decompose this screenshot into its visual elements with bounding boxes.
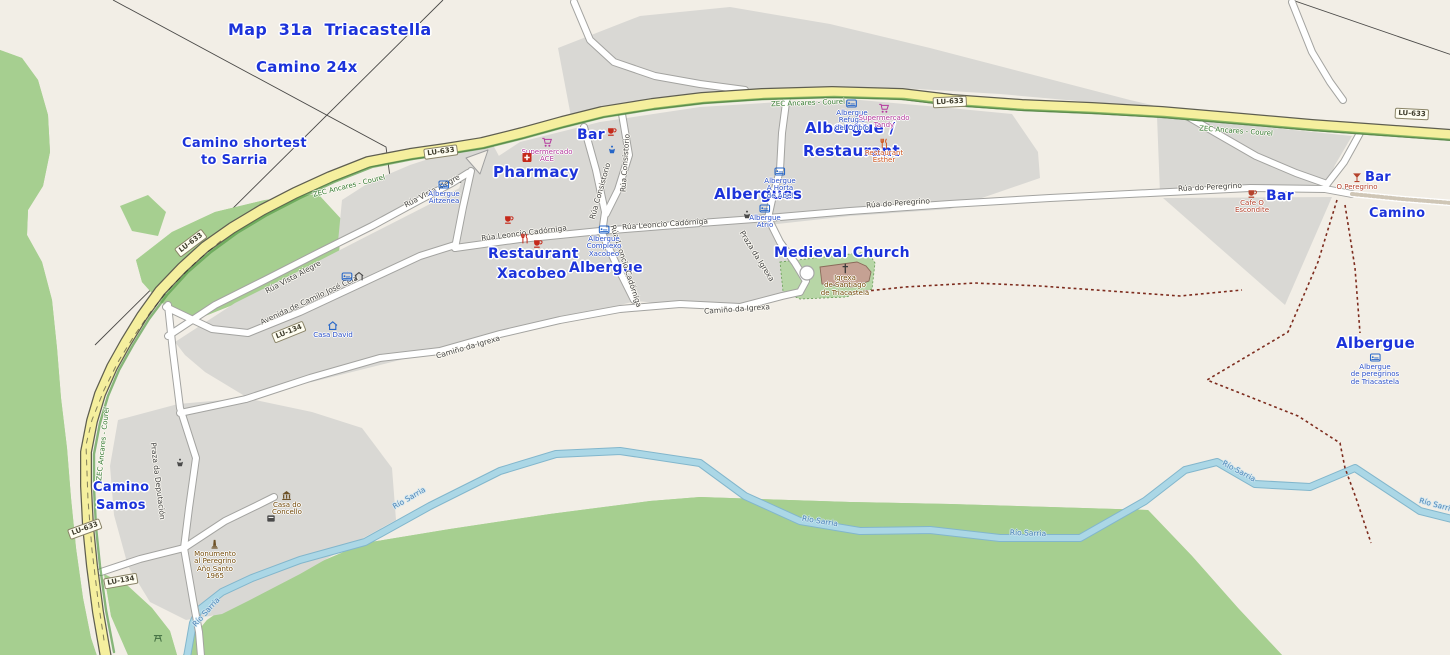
- river-name-label: Río Sarria: [1221, 458, 1257, 483]
- poi-label: Casa doConcello: [272, 502, 302, 517]
- bed-icon: [760, 203, 771, 214]
- poi-supermercado-tandy: SupermercadoTandy: [858, 103, 909, 130]
- poi-restaurant-xacobeo: [520, 233, 531, 244]
- poi-label: AlbergueAitzenea: [428, 191, 459, 206]
- poi-postbox: [266, 513, 277, 524]
- poi-label: O Peregrino: [1336, 184, 1377, 192]
- poi-pharmacy: [522, 152, 533, 163]
- monument-icon: [209, 539, 220, 550]
- poi-albergue-atrio: AlbergueAtrio: [749, 203, 780, 230]
- house-icon: [328, 320, 339, 331]
- martini-icon: [1352, 172, 1363, 183]
- pharmacy-icon: [522, 152, 533, 163]
- fork-icon: [878, 138, 889, 149]
- poi-bar-xacobeo: [533, 238, 544, 249]
- annotation-bar-east-1: Bar: [1266, 188, 1294, 204]
- poi-hotel-shelter: [354, 271, 365, 282]
- poi-hotel-bed: [342, 271, 353, 282]
- poi-label: AlbergueA Hortade Abel: [764, 178, 795, 201]
- cart-icon: [878, 103, 889, 114]
- road-shield: LU-134: [103, 573, 139, 590]
- poi-label: Casa David: [313, 332, 353, 340]
- poi-fountain-deputacion: [175, 457, 186, 468]
- road-shield: LU-633: [1395, 108, 1430, 121]
- river-name-label: Río Sarria: [1010, 528, 1047, 538]
- annotation-medieval-church: Medieval Church: [774, 245, 910, 261]
- annotation-camino-shortest-2: to Sarria: [201, 153, 268, 168]
- poi-restaurant-esther: RestaurantEsther: [865, 138, 903, 165]
- bed-icon: [775, 166, 786, 177]
- zec-boundary-label: ZEC Ancares - Courel: [95, 407, 111, 481]
- poi-label: Alberguede peregrinosde Triacastela: [1351, 364, 1399, 387]
- shelter-icon: [354, 271, 365, 282]
- bed-icon: [342, 271, 353, 282]
- poi-casa-do-concello: Casa doConcello: [272, 490, 302, 517]
- street-name-label: Rúa do Peregrino: [1178, 181, 1242, 193]
- annotation-albergue-southeast: Albergue: [1336, 334, 1415, 352]
- street-name-label: Rúa do Peregrino: [866, 196, 930, 209]
- annotation-bar-center: Bar: [577, 127, 605, 143]
- townhall-icon: [282, 490, 293, 501]
- bed-icon: [847, 98, 858, 109]
- poi-drinking-water: [607, 144, 618, 155]
- fountain-icon: [175, 457, 186, 468]
- annotation-restaurant-xacobeo-2: Xacobeo: [497, 266, 566, 282]
- bed-icon: [1370, 352, 1381, 363]
- poi-label: Cafe OEscondite: [1235, 200, 1269, 215]
- poi-casa-david: Casa David: [313, 320, 353, 340]
- poi-monumento-peregrino: Monumentoal PeregrinoAño Santo1965: [194, 539, 236, 581]
- poi-picnic-site: [153, 632, 164, 643]
- poi-albergue-a-horta-de-abel: AlbergueA Hortade Abel: [764, 166, 795, 201]
- annotation-map-title: Map 31a Triacastella: [228, 20, 432, 39]
- river-name-label: Río Sarria: [1418, 496, 1450, 514]
- cup-icon: [504, 214, 515, 225]
- fork-icon: [520, 233, 531, 244]
- road-shield: LU-633: [67, 518, 103, 540]
- picnic-icon: [153, 632, 164, 643]
- street-name-label: Camiño da Igrexa: [704, 302, 771, 316]
- street-name-label: Rúa Leoncio Cadórniga: [622, 217, 709, 232]
- road-shield: LU-134: [271, 320, 307, 343]
- triacastela-map: Map 31a TriacastellaCamino 24xCamino sho…: [0, 0, 1450, 655]
- street-name-label: Rúa Consistorio: [618, 134, 631, 193]
- zec-boundary-label: ZEC Ancares - Courel: [312, 173, 386, 199]
- poi-o-peregrino: O Peregrino: [1336, 172, 1377, 192]
- fountain-icon: [607, 144, 618, 155]
- poi-label: Igrexade Santiagode Triacastela: [821, 275, 869, 298]
- zec-boundary-label: ZEC Ancares - Courel: [771, 98, 845, 109]
- poi-albergue-peregrinos: Alberguede peregrinosde Triacastela: [1351, 352, 1399, 387]
- poi-bar-leoncio: [504, 214, 515, 225]
- poi-label: Monumentoal PeregrinoAño Santo1965: [194, 551, 236, 581]
- street-name-label: Rúa Vista Alegre: [264, 259, 323, 296]
- poi-label: AlbergueComplexoXacobeo: [587, 236, 622, 259]
- poi-albergue-aitzenea: AlbergueAitzenea: [428, 179, 459, 206]
- annotation-pharmacy: Pharmacy: [493, 163, 579, 181]
- poi-label: RestaurantEsther: [865, 150, 903, 165]
- river-name-label: Río Sarria: [190, 595, 221, 628]
- annotation-camino-samos-2: Samos: [96, 498, 146, 513]
- river-name-label: Río Sarria: [391, 485, 427, 511]
- poi-bar-top: [607, 126, 618, 137]
- fountain-icon: [742, 209, 753, 220]
- road-shield: LU-633: [174, 228, 208, 258]
- bed-icon: [439, 179, 450, 190]
- bed-icon: [599, 224, 610, 235]
- poi-fountain-atrio: [742, 209, 753, 220]
- street-name-label: Camiño da Igrexa: [435, 334, 501, 361]
- cup-icon: [1246, 188, 1257, 199]
- cart-icon: [541, 137, 552, 148]
- annotation-camino-shortest-1: Camino shortest: [182, 136, 307, 151]
- cross-icon: [840, 263, 851, 274]
- road-shield: LU-633: [423, 144, 459, 160]
- postbox-icon: [266, 513, 277, 524]
- zec-boundary-label: ZEC Ancares - Courel: [1199, 124, 1273, 137]
- street-name-label: Praza da Igrexa: [738, 229, 776, 283]
- poi-albergue-complexo-xacobeo: AlbergueComplexoXacobeo: [587, 224, 622, 259]
- poi-igrexa-santiago: Igrexade Santiagode Triacastela: [821, 263, 869, 298]
- road-shield: LU-633: [933, 96, 968, 109]
- river-name-label: Río Sarria: [801, 514, 838, 529]
- poi-label: SupermercadoTandy: [858, 115, 909, 130]
- street-name-label: Rúa Consistorio: [588, 162, 613, 221]
- cup-icon: [607, 126, 618, 137]
- label-layer: Map 31a TriacastellaCamino 24xCamino sho…: [0, 0, 1450, 655]
- annotation-camino-24x: Camino 24x: [256, 58, 358, 76]
- poi-cafe-o-escondite: Cafe OEscondite: [1235, 188, 1269, 215]
- annotation-camino-east: Camino: [1369, 206, 1425, 221]
- street-name-label: Praza da Deputación: [149, 442, 167, 520]
- annotation-camino-samos-1: Camino: [93, 480, 149, 495]
- poi-label: AlbergueAtrio: [749, 215, 780, 230]
- cup-icon: [533, 238, 544, 249]
